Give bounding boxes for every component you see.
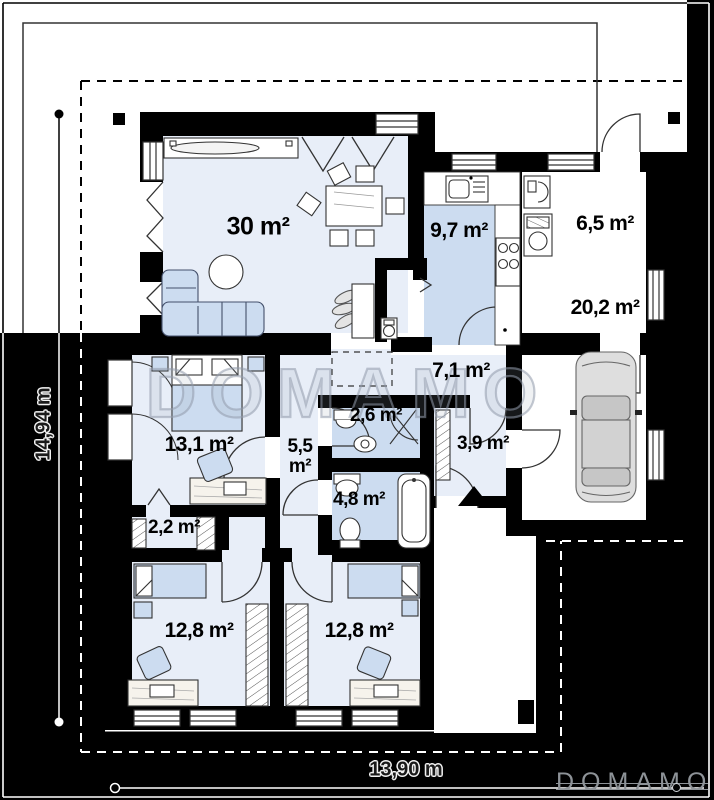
wc-toilet	[354, 436, 376, 452]
window-living-left	[143, 142, 163, 180]
window-bottom-4	[352, 710, 398, 726]
room-label-bathroom: 4,8 m²	[333, 489, 385, 511]
dimension-width-label: 13,90 m	[369, 759, 442, 782]
sideboard	[164, 138, 298, 158]
single-bed-left	[134, 564, 206, 598]
fireplace-cabinet	[381, 318, 397, 339]
logo-line	[556, 789, 708, 790]
chair	[330, 230, 348, 246]
floor-plan: 30 m² 9,7 m² 6,5 m² 20,2 m² 7,1 m² 2,6 m…	[0, 0, 714, 800]
room-label-wc: 2,6 m²	[350, 405, 402, 427]
window-living-top	[376, 114, 418, 134]
closet	[132, 519, 146, 548]
desk-bedroom-3	[350, 680, 420, 706]
logo-dot-icon	[672, 783, 681, 792]
room-label-vestibule: 3,9 m²	[457, 433, 509, 455]
nightstand	[134, 602, 152, 618]
chair	[356, 166, 374, 182]
stove	[496, 238, 520, 286]
room-label-kitchen: 9,7 m²	[430, 219, 488, 243]
room-label-utility-room: 6,5 m²	[576, 212, 634, 236]
window-bedroom1-left-1	[108, 360, 132, 406]
nightstand	[402, 600, 418, 616]
back-door-gap	[600, 152, 640, 172]
wardrobe-tall	[246, 604, 268, 706]
window-bottom-3	[296, 710, 342, 726]
wardrobe-tall	[286, 604, 308, 706]
pergola-column	[668, 112, 680, 124]
window-bottom-1	[134, 710, 180, 726]
kitchen-sink	[446, 176, 488, 202]
room-label-bedroom-3: 12,8 m²	[325, 619, 394, 643]
window-bottom-2	[190, 710, 236, 726]
porch-column	[518, 700, 534, 724]
pergola-column	[113, 113, 125, 125]
desk-bedroom-2	[128, 680, 198, 706]
furnace	[524, 214, 552, 256]
dimension-height-label: 14,94 m	[33, 387, 56, 460]
room-label-corridor: 5,5 m²	[277, 437, 323, 477]
room-label-living-room: 30 m²	[227, 213, 290, 242]
window-garage-right-1	[648, 270, 664, 320]
room-label-wardrobe: 2,2 m²	[148, 517, 200, 539]
water-heater	[524, 176, 550, 208]
dim-marker	[111, 784, 120, 793]
room-label-garage: 20,2 m²	[571, 296, 640, 320]
logo-line	[556, 783, 708, 784]
coffee-table	[209, 255, 243, 289]
bath-toilet	[340, 518, 360, 548]
room-label-bedroom-1: 13,1 m²	[165, 433, 234, 457]
window-bedroom1-left-2	[108, 414, 132, 460]
single-bed-right	[348, 564, 420, 598]
window-garage-right-2	[648, 430, 664, 480]
chair	[386, 198, 404, 214]
bathtub	[398, 474, 430, 548]
dim-marker	[55, 718, 64, 727]
room-label-bedroom-2: 12,8 m²	[165, 619, 234, 643]
shelf	[352, 284, 374, 338]
room-label-hall: 7,1 m²	[432, 359, 490, 383]
chair	[356, 230, 374, 246]
window-kitchen-top	[452, 154, 496, 170]
dim-marker	[55, 110, 64, 119]
car	[570, 352, 642, 502]
window-utility-top	[548, 154, 594, 170]
